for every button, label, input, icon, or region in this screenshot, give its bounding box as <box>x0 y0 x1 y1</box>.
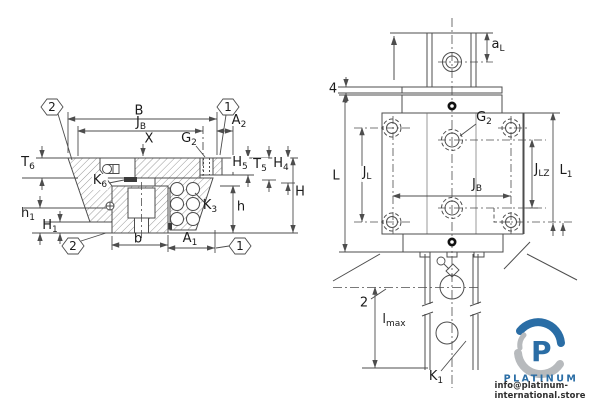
dim-label-lmax: lmax <box>382 313 405 329</box>
g2-thread-hole <box>200 158 213 175</box>
dim-label-X: X <box>145 133 154 146</box>
dim-label-A2: A2 <box>232 114 247 130</box>
dim-label-L: L <box>332 170 339 183</box>
callout-2-top: 2 <box>48 101 56 113</box>
logo-contact-text: info@platinum-international.store <box>495 380 586 400</box>
callout-2-bottom: 2 <box>69 240 77 252</box>
dim-label-L1: L1 <box>559 164 574 180</box>
dim-label-T5: T5 <box>252 158 268 174</box>
dim-label-h1: h1 <box>21 207 35 223</box>
dim-label-G2-right: G2 <box>476 111 492 127</box>
carriage-body-plan <box>382 113 523 234</box>
grease-fitting-icon <box>437 257 459 277</box>
dim-label-JL: JL <box>362 166 373 182</box>
dim-label-A1: A1 <box>183 232 198 248</box>
logo-monogram: P <box>531 335 552 368</box>
callout-4: 4 <box>329 83 337 96</box>
dim-label-aL: aL <box>492 38 505 54</box>
technical-drawing-page: P B JB A2 X G2 T6 K6 K3 H5 T5 H4 H h h1 … <box>0 0 600 400</box>
drawing-linework: P <box>0 0 600 400</box>
dim-label-JB-right: JB <box>472 178 482 194</box>
mounting-holes <box>383 119 520 231</box>
dim-label-H: H <box>295 186 305 199</box>
rail-hole-lower <box>436 322 458 344</box>
rail-below <box>422 254 481 370</box>
rail-datum-mark <box>106 202 114 210</box>
platinum-logo-icon: P <box>518 322 561 374</box>
dim-label-T6: T6 <box>21 156 35 172</box>
dim-label-K1: K1 <box>429 370 443 386</box>
dim-label-h: h <box>236 201 246 214</box>
leader-G2 <box>196 146 205 157</box>
dim-label-K3: K3 <box>203 199 217 215</box>
grease-nipple-icon <box>103 165 120 174</box>
callout-1-bottom: 1 <box>236 240 244 252</box>
carriage-top-plate <box>135 158 200 178</box>
dim-label-H5: H5 <box>231 156 249 172</box>
upper-seal <box>124 177 137 182</box>
dim-label-b: b <box>134 233 142 246</box>
dim-label-JLZ: JLZ <box>533 163 550 179</box>
callout-2-right: 2 <box>360 297 368 310</box>
dim-label-G2-left: G2 <box>181 132 197 148</box>
dim-label-H1: H1 <box>42 219 58 235</box>
dim-label-H4: H4 <box>272 157 290 173</box>
dim-label-JB-left: JB <box>136 116 146 132</box>
callout-1-top: 1 <box>224 101 232 113</box>
right-plan-view <box>333 18 577 388</box>
dim-label-K6: K6 <box>92 174 108 190</box>
